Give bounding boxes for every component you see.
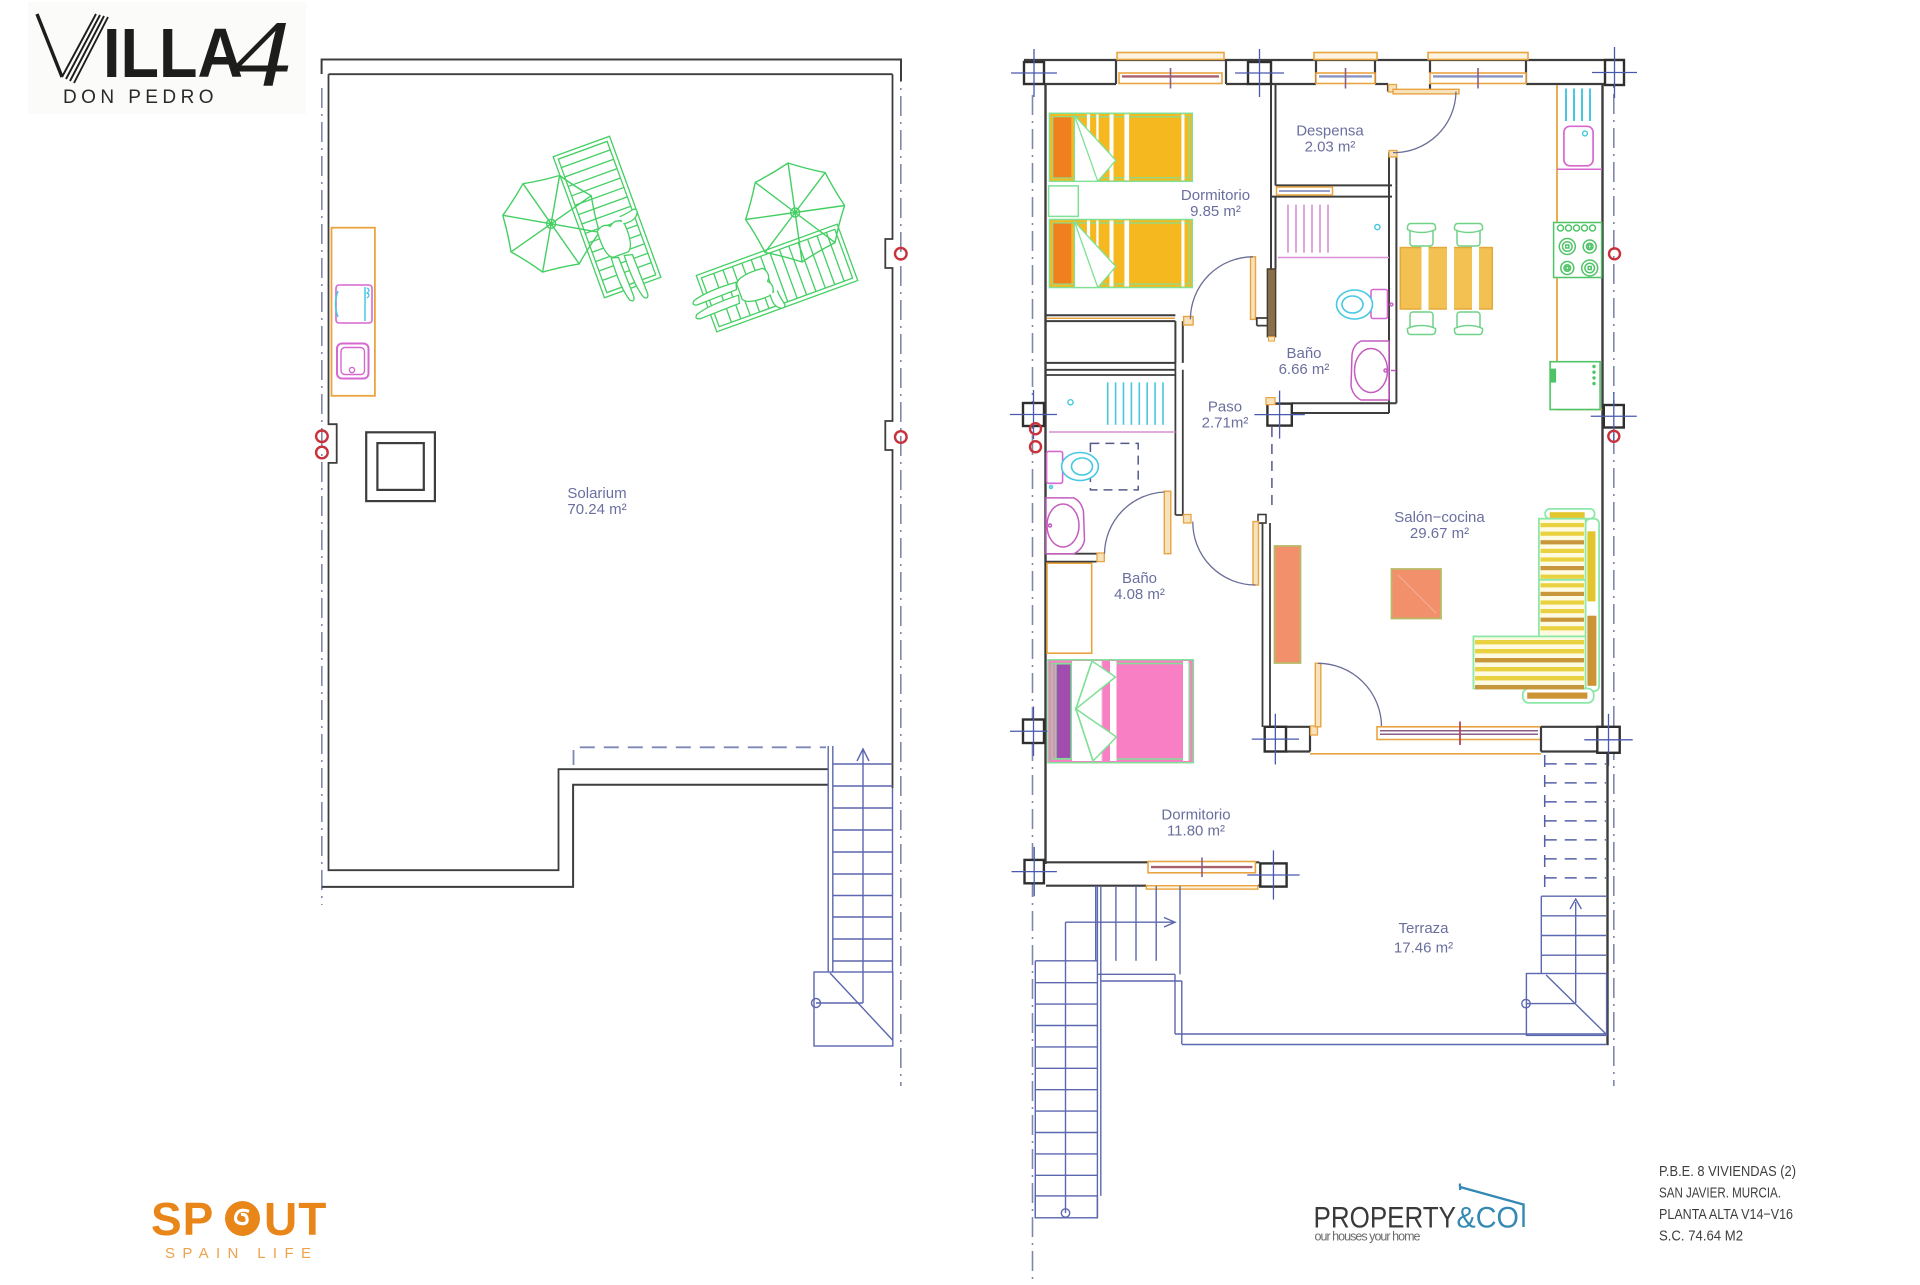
svg-text:6.66 m²: 6.66 m² bbox=[1279, 361, 1330, 378]
svg-text:S.C. 74.64 M2: S.C. 74.64 M2 bbox=[1659, 1229, 1743, 1245]
svg-text:70.24 m²: 70.24 m² bbox=[567, 501, 626, 518]
svg-text:SAN JAVIER. MURCIA.: SAN JAVIER. MURCIA. bbox=[1659, 1186, 1781, 1202]
svg-text:Despensa: Despensa bbox=[1296, 123, 1364, 140]
svg-text:&CO: &CO bbox=[1457, 1202, 1520, 1235]
svg-text:2.71m²: 2.71m² bbox=[1202, 415, 1249, 432]
svg-text:Baño: Baño bbox=[1286, 345, 1321, 362]
svg-text:DON PEDRO: DON PEDRO bbox=[63, 87, 218, 108]
svg-text:Salón−cocina: Salón−cocina bbox=[1394, 509, 1485, 526]
svg-text:SP: SP bbox=[151, 1193, 214, 1245]
svg-text:17.46 m²: 17.46 m² bbox=[1394, 940, 1453, 957]
svg-text:Dormitorio: Dormitorio bbox=[1161, 807, 1230, 824]
svg-text:our houses your home: our houses your home bbox=[1315, 1230, 1423, 1244]
svg-text:Baño: Baño bbox=[1122, 570, 1157, 587]
svg-text:9.85 m²: 9.85 m² bbox=[1190, 203, 1241, 220]
svg-text:PLANTA ALTA V14−V16: PLANTA ALTA V14−V16 bbox=[1659, 1207, 1793, 1223]
svg-text:SPAIN LIFE: SPAIN LIFE bbox=[165, 1245, 318, 1262]
svg-text:Dormitorio: Dormitorio bbox=[1181, 187, 1250, 204]
svg-text:4.08 m²: 4.08 m² bbox=[1114, 586, 1165, 603]
svg-text:P.B.E. 8 VIVIENDAS (2): P.B.E. 8 VIVIENDAS (2) bbox=[1659, 1164, 1796, 1180]
svg-text:29.67 m²: 29.67 m² bbox=[1410, 525, 1469, 542]
svg-text:2.03 m²: 2.03 m² bbox=[1305, 139, 1356, 156]
svg-text:Paso: Paso bbox=[1208, 399, 1242, 416]
svg-text:ILLA: ILLA bbox=[103, 14, 243, 92]
svg-text:Terraza: Terraza bbox=[1398, 920, 1449, 937]
svg-text:4: 4 bbox=[233, 1, 291, 107]
svg-text:Solarium: Solarium bbox=[567, 485, 626, 502]
svg-text:UT: UT bbox=[264, 1193, 327, 1245]
svg-text:11.80 m²: 11.80 m² bbox=[1167, 823, 1225, 840]
